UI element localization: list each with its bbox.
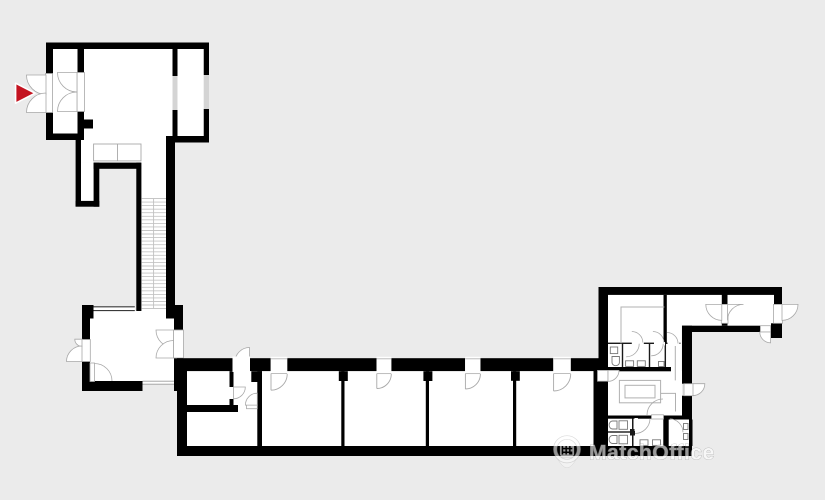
svg-text:MatchOffice: MatchOffice	[589, 442, 715, 465]
